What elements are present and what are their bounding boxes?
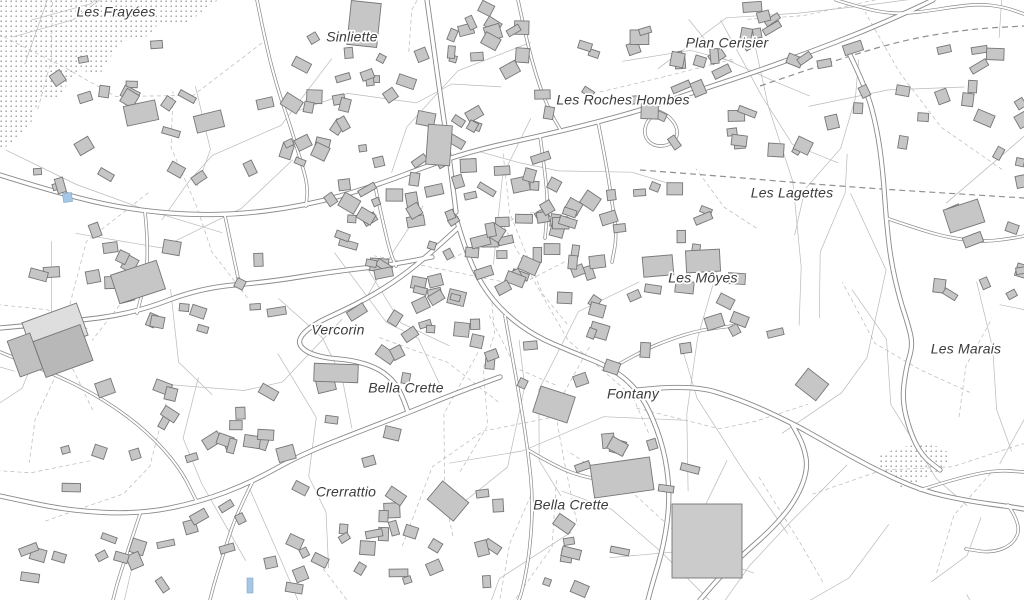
building [482,575,490,587]
place-label-crerrattio: Crerrattio [316,484,376,500]
building [1015,158,1024,167]
building [557,292,572,304]
place-label-bella-crette-1: Bella Crette [368,380,444,396]
building [516,214,533,223]
building [680,342,692,353]
building [179,303,189,311]
place-label-fontany: Fontany [607,386,660,402]
building [373,156,385,168]
building [853,103,863,114]
building [470,52,483,61]
building [151,40,163,48]
place-label-vercorin: Vercorin [311,322,364,338]
building [485,222,497,237]
building [1016,266,1024,274]
building [409,172,420,186]
building [33,168,41,175]
building [314,363,359,383]
building [825,114,840,130]
building [613,223,626,232]
building [494,166,510,176]
building [303,101,314,113]
building [453,322,469,337]
building [427,241,436,250]
building [768,143,785,157]
building [62,483,81,492]
place-label-les-moyes: Les Môyes [668,270,738,286]
building [523,341,537,350]
building [543,106,554,120]
building [606,189,616,200]
building [961,93,974,107]
building [470,334,484,349]
building [78,56,88,64]
building [589,255,606,269]
place-label-bella-crette-2: Bella Crette [533,497,609,513]
building [344,47,353,58]
building [465,247,479,258]
water-feature [247,578,253,593]
building [230,421,243,430]
building [710,48,719,63]
building [640,342,651,357]
map-canvas[interactable]: Les FrayéesSinliettePlan CerisierLes Roc… [0,0,1024,600]
building [460,159,477,173]
building [250,303,261,310]
building [968,80,977,93]
building [633,189,645,197]
building [672,504,742,578]
building [563,537,574,545]
place-label-plan-cerisier: Plan Cerisier [686,35,770,51]
building [918,113,929,122]
building [164,387,178,402]
building [535,90,551,99]
building [497,251,507,259]
place-label-les-frayees: Les Frayées [76,4,155,20]
building [389,569,408,577]
building [365,259,377,268]
building [236,407,246,419]
building [386,189,403,201]
building [493,499,504,512]
place-label-sinliette: Sinliette [326,29,378,45]
building [515,48,529,63]
building [667,183,683,195]
building [568,255,578,269]
water-feature [62,192,72,202]
building [85,269,101,284]
building [20,572,39,583]
building [470,319,480,330]
place-label-les-marais: Les Marais [931,341,1001,357]
building [264,556,278,569]
building [447,46,455,59]
building [347,215,356,223]
building [254,253,264,266]
building [360,541,376,556]
building [338,179,351,191]
building [986,48,1004,60]
building [379,510,389,522]
building [677,230,686,242]
building [898,136,909,150]
building [162,239,181,255]
building [544,244,560,255]
building [359,144,367,151]
building [257,429,274,440]
building [61,445,71,454]
map-viewport[interactable]: Les FrayéesSinliettePlan CerisierLes Roc… [0,0,1024,600]
building [426,325,435,333]
building [743,1,762,12]
building [670,51,686,67]
building [99,85,110,98]
building [896,85,911,97]
building [476,489,489,498]
building [150,315,165,329]
place-label-les-lagettes: Les Lagettes [751,185,834,201]
building [426,124,453,166]
building [731,134,747,146]
building [103,242,119,254]
building [325,415,338,424]
place-label-les-roches-hombes: Les Roches Hombes [556,92,689,108]
